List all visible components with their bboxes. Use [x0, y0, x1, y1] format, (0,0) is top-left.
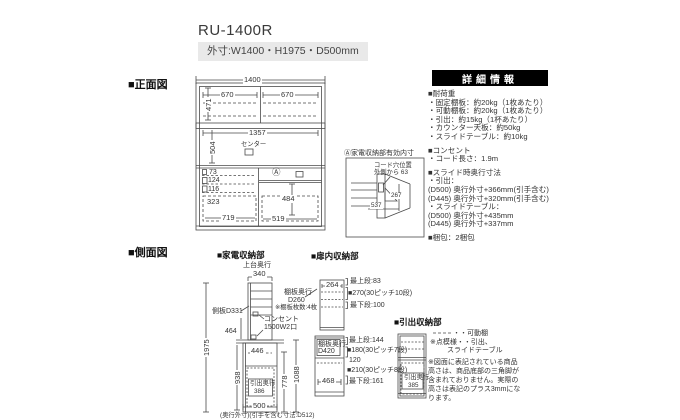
legend-dotted-2: スライドテーブル	[447, 347, 503, 354]
side-view-depth-note: (奥行外寸)(引手を含む寸法:D512)	[220, 413, 314, 419]
legend-note-line: 含まれておりません。実際の	[428, 376, 520, 385]
dim-upper-right-width: 670	[280, 91, 295, 99]
door-upper-note: 最上段:83	[350, 278, 381, 285]
dim-upper-height: 471	[205, 97, 213, 112]
outlet-label-line2: 1500W2口	[264, 324, 297, 331]
drawer-label: 引出奥行	[404, 375, 429, 381]
dim-base-depth: 500	[252, 402, 267, 410]
appliance-storage-heading: ■家電収納部	[217, 251, 265, 260]
line-art	[0, 0, 680, 420]
door-lower-note: ■210(30ピッチ8段)	[347, 367, 407, 374]
door-upper-shelf-label3: ※棚板枚数:4枚	[275, 305, 317, 311]
dim-lower-left-width: 719	[221, 214, 236, 222]
legend-note: ※図面に表記されている商品 高さは、商品底部の三角脚が 含まれておりません。実際…	[428, 358, 520, 403]
dim-upper-depth: 340	[252, 270, 267, 278]
dim-total-height: 1975	[203, 338, 211, 357]
dim-row2: 124	[208, 177, 220, 184]
door-upper-shelf-label1: 棚板奥行	[284, 289, 312, 296]
details-line: ・スライドテーブル：約10kg	[428, 133, 558, 142]
door-upper-shelf-label2: D260	[288, 297, 305, 304]
dim-row1: 73	[209, 169, 217, 176]
dim-drawer-depth: 385	[408, 383, 419, 389]
door-upper-note: ■270(30ピッチ10段)	[348, 290, 412, 297]
door-lower-note: 最上段:144	[349, 337, 384, 344]
inset-dim-depth: 537	[370, 203, 383, 209]
center-label: センター	[241, 142, 266, 148]
legend-note-line: 高さは表記のプラス3mmにな	[428, 385, 520, 394]
drawer-storage-heading: ■引出収納部	[394, 318, 442, 327]
legend-note-line: ります。	[428, 394, 520, 403]
dim-middle-width: 1357	[248, 129, 267, 137]
details-line: (D445) 奥行外寸+337mm	[428, 220, 558, 229]
door-lower-note: 最下段:161	[349, 378, 384, 385]
details-panel-header: 詳細情報	[432, 70, 548, 86]
door-upper-note: 最下段:100	[350, 302, 385, 309]
outlet-label-line1: コンセント	[264, 316, 299, 323]
dim-upper-left-width: 670	[220, 91, 235, 99]
legend-movable-shelf: ・・可動棚	[453, 330, 488, 337]
inset-title: Ⓐ家電収納部有効内寸	[344, 150, 414, 157]
dim-row3: 116	[208, 186, 219, 193]
dim-side-drawer-depth: 386	[254, 389, 265, 395]
side-panel-label: 側板D331	[212, 308, 243, 315]
details-line: ■梱包：2梱包	[428, 234, 558, 243]
dim-niche-height: 464	[224, 328, 238, 335]
dim-lower-right-height: 484	[281, 195, 296, 203]
side-drawer-label: 引出奥行	[250, 381, 275, 387]
page-title: RU-1400R	[198, 22, 273, 39]
dim-total-width: 1400	[243, 76, 262, 84]
dim-inner-depth: 446	[250, 347, 265, 355]
door-lower-shelf-label1: 棚板奥行	[318, 341, 346, 348]
door-storage-heading: ■扉内収納部	[311, 252, 359, 261]
a-mark: Ⓐ	[272, 168, 281, 177]
upper-depth-label: 上台奥行	[243, 262, 271, 269]
inset-dim-height: 267	[390, 193, 403, 199]
side-view-heading: ■側面図	[128, 248, 168, 259]
inset-note-line2: 外側から 63	[374, 170, 408, 176]
legend-note-line: ※図面に表記されている商品	[428, 358, 520, 367]
dim-right-1: 778	[281, 374, 289, 389]
door-lower-note: ■180(30ピッチ7段)	[347, 347, 407, 354]
details-panel-body: ■耐荷重 ・固定棚板：約20kg（1枚あたり） ・可動棚板：約20kg（1枚あた…	[428, 90, 558, 243]
dim-base-height: 938	[234, 370, 242, 385]
dim-door-upper-width: 264	[325, 281, 340, 289]
door-lower-note: 120	[349, 357, 361, 364]
dim-right-2: 1088	[293, 365, 301, 384]
outer-dimensions-badge: 外寸:W1400・H1975・D500mm	[198, 42, 368, 61]
dim-lower-right-width: 519	[271, 215, 286, 223]
dim-middle-height: 504	[209, 140, 217, 155]
door-lower-shelf-label2: D420	[318, 348, 335, 355]
front-view-heading: ■正面図	[128, 80, 168, 91]
legend-note-line: 高さは、商品底部の三角脚が	[428, 367, 520, 376]
dim-lower-left-height: 323	[206, 198, 221, 206]
spec-sheet: RU-1400R 外寸:W1400・H1975・D500mm ■正面図 ■側面図…	[0, 0, 680, 420]
legend-dotted-1: ※点模様・・引出、	[430, 339, 492, 346]
side-view-drawing	[203, 277, 299, 412]
details-line: ・コード長さ：1.9m	[428, 155, 558, 164]
dim-door-lower-width: 468	[321, 377, 336, 385]
